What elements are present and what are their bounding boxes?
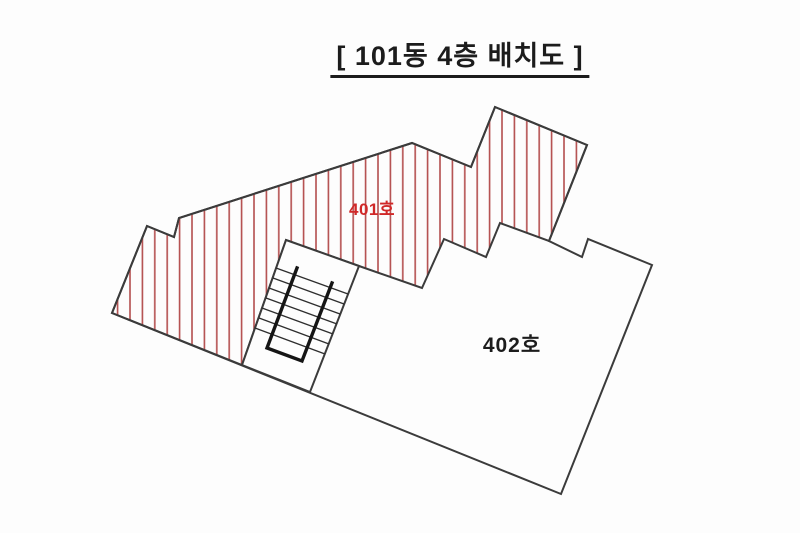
floor-plan-page: [ 101동 4층 배치도 ] 401호 402호: [0, 0, 800, 533]
unit-401-label: 401호: [349, 200, 395, 219]
floor-plan-drawing: 401호 402호: [0, 0, 800, 533]
unit-402-label: 402호: [483, 334, 541, 357]
